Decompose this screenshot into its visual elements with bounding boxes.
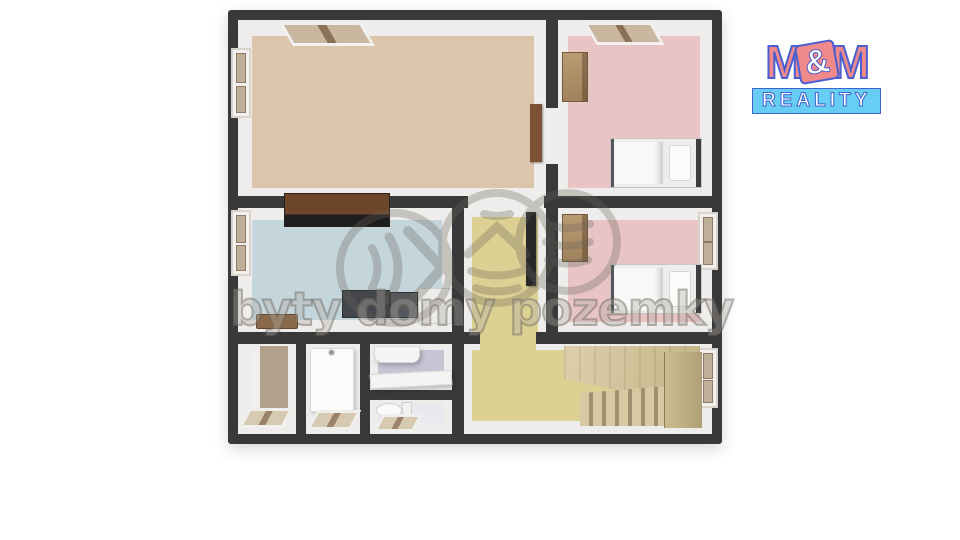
skylight-top-left-room — [279, 22, 375, 46]
bed-bedroom1 — [610, 138, 702, 188]
kitchen-upper-cabinet — [284, 193, 390, 227]
bed-footboard — [611, 139, 614, 187]
wardrobe-bedroom2 — [562, 214, 588, 262]
ceiling-lamp — [329, 350, 334, 355]
bathroom-sink — [374, 346, 420, 363]
room-top-left — [238, 20, 546, 196]
kitchen-fridge — [418, 288, 452, 324]
wardrobe-bedroom1 — [562, 52, 588, 102]
window-pane — [703, 380, 713, 403]
window-pane — [236, 245, 246, 271]
bed-footboard — [611, 265, 614, 313]
window-pane — [236, 53, 246, 83]
bed-duvet — [614, 268, 663, 310]
closet-accent-wall — [260, 346, 288, 408]
floor-plan — [228, 10, 722, 444]
window-left-kitchen — [231, 210, 251, 276]
bed-duvet — [614, 142, 663, 184]
bed-headboard — [696, 265, 701, 313]
door-corridor-open — [526, 212, 536, 286]
window-pane — [236, 86, 246, 113]
window-right-bedroom2 — [698, 212, 718, 270]
window-pane — [236, 215, 246, 243]
door-living-to-bedroom — [530, 104, 542, 162]
threshold-living-bedroom — [544, 108, 560, 164]
window-pane — [703, 217, 713, 242]
agency-logo: M & M REALITY — [752, 34, 881, 114]
threshold-living-corridor — [468, 194, 544, 210]
kitchen-oven — [390, 292, 418, 318]
kitchen-stove — [342, 290, 390, 318]
window-pane — [703, 242, 713, 265]
logo-reality-bar: REALITY — [752, 88, 881, 114]
skylight-bedroom-top-right — [583, 22, 664, 45]
bed-headboard — [696, 139, 701, 187]
logo-ampersand: & — [802, 43, 832, 81]
doorway-corridor-hall — [480, 326, 536, 356]
bed-pillow — [669, 271, 691, 307]
entry-wardrobe — [310, 348, 354, 412]
window-left-living — [231, 48, 251, 118]
bed-bedroom2 — [610, 264, 702, 314]
screenshot-canvas: byty domy pozemky M & M REALITY — [0, 0, 960, 540]
logo-ampersand-badge: & — [793, 39, 839, 85]
kitchen-cutting-board — [256, 314, 298, 329]
window-pane — [703, 353, 713, 379]
bed-pillow — [669, 145, 691, 181]
logo-mm-block: M & M — [757, 34, 876, 88]
staircase-side-panel — [664, 352, 702, 428]
